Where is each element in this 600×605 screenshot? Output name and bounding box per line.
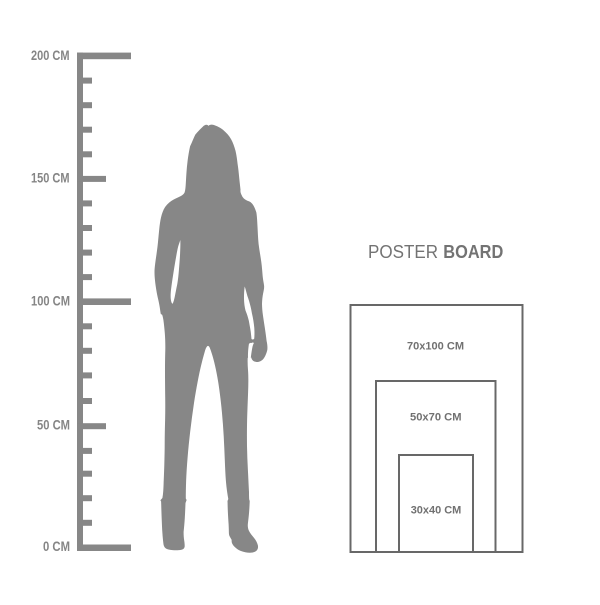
svg-text:0 CM: 0 CM [43,538,70,554]
svg-text:200 CM: 200 CM [31,47,70,63]
svg-text:POSTER: POSTER [368,242,438,262]
svg-text:100 CM: 100 CM [31,292,70,308]
svg-text:30x40 CM: 30x40 CM [411,504,462,516]
svg-text:150 CM: 150 CM [31,170,70,186]
svg-text:50 CM: 50 CM [37,416,70,432]
svg-text:70x100 CM: 70x100 CM [407,341,464,353]
svg-text:BOARD: BOARD [443,242,503,262]
svg-text:50x70 CM: 50x70 CM [410,412,462,424]
